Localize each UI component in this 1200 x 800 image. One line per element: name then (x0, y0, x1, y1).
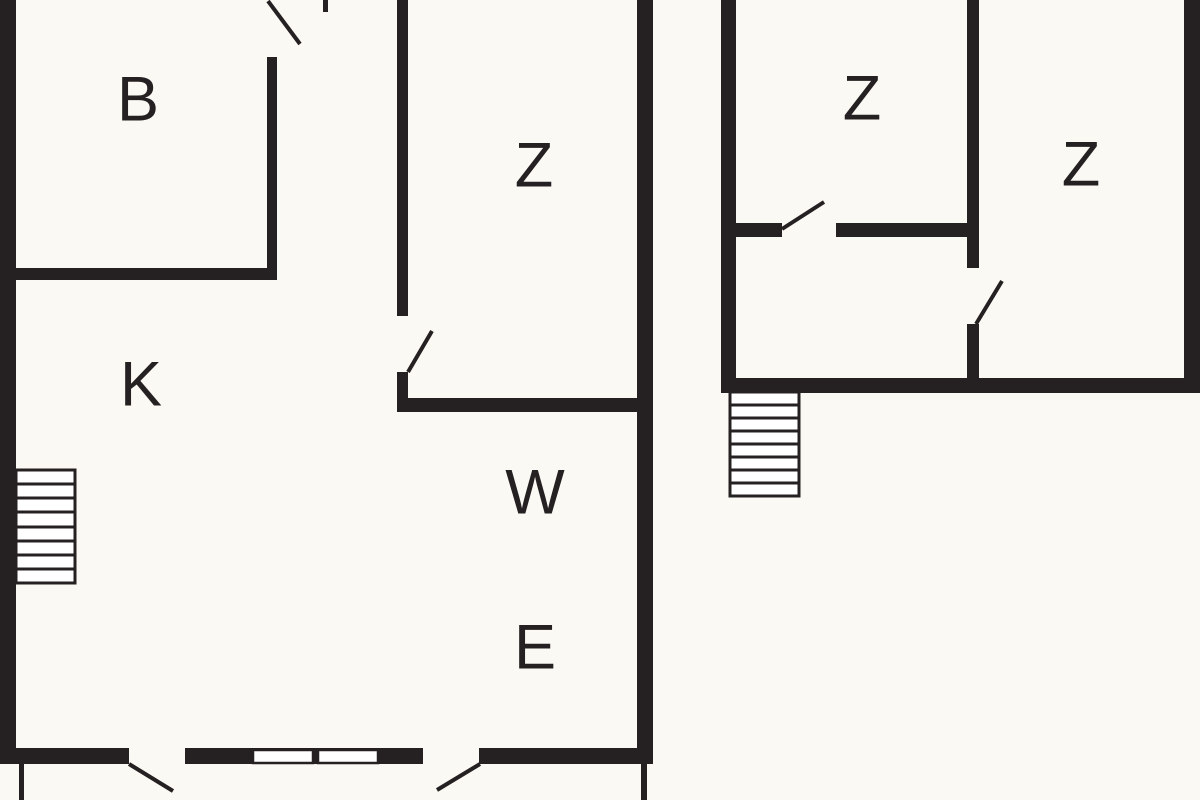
terrace-edge-west (19, 764, 24, 800)
door-swing-south-west (129, 764, 173, 791)
room-label-b: B (117, 69, 159, 132)
wall-main-south-segment-3 (479, 748, 653, 764)
wall-room-z-west-upper (397, 0, 408, 316)
staircase-annex (730, 392, 799, 496)
door-swing-annex-front (782, 202, 824, 229)
terrace-edge-east (641, 764, 647, 800)
floor-plan-canvas (0, 0, 1200, 800)
wall-main-south-segment-1 (0, 748, 129, 764)
wall-annex-hall-segment-2 (836, 223, 979, 237)
wall-room-z-west-lower (397, 372, 408, 402)
room-label-k: K (120, 354, 162, 417)
room-label-w: W (505, 462, 564, 525)
wall-room-b-east (267, 57, 277, 280)
wall-annex-west (721, 0, 736, 393)
wall-main-east (637, 0, 653, 764)
room-label-z-main: Z (515, 135, 553, 198)
wall-annex-divider-lower (967, 324, 979, 378)
wall-annex-east (1184, 0, 1200, 393)
door-swing-south-east (437, 764, 480, 790)
door-swing-room-b (268, 1, 300, 44)
floor-plan: B Z K W E Z Z (0, 0, 1200, 800)
wall-interior-horizontal (397, 398, 653, 412)
room-label-e: E (514, 617, 556, 680)
room-label-z-annex-back: Z (1062, 134, 1100, 197)
wall-room-b-south (0, 268, 277, 280)
wall-annex-hall-segment-1 (736, 223, 782, 237)
wall-main-west (0, 0, 16, 764)
door-swing-annex-back (976, 281, 1002, 324)
wall-stub-top (323, 0, 328, 12)
door-swing-room-z-main (408, 331, 432, 372)
annex-building (721, 0, 1200, 393)
room-label-z-annex-front: Z (843, 68, 881, 131)
window-south-left (253, 750, 313, 763)
window-south-right (318, 750, 378, 763)
staircase-main (16, 470, 75, 583)
